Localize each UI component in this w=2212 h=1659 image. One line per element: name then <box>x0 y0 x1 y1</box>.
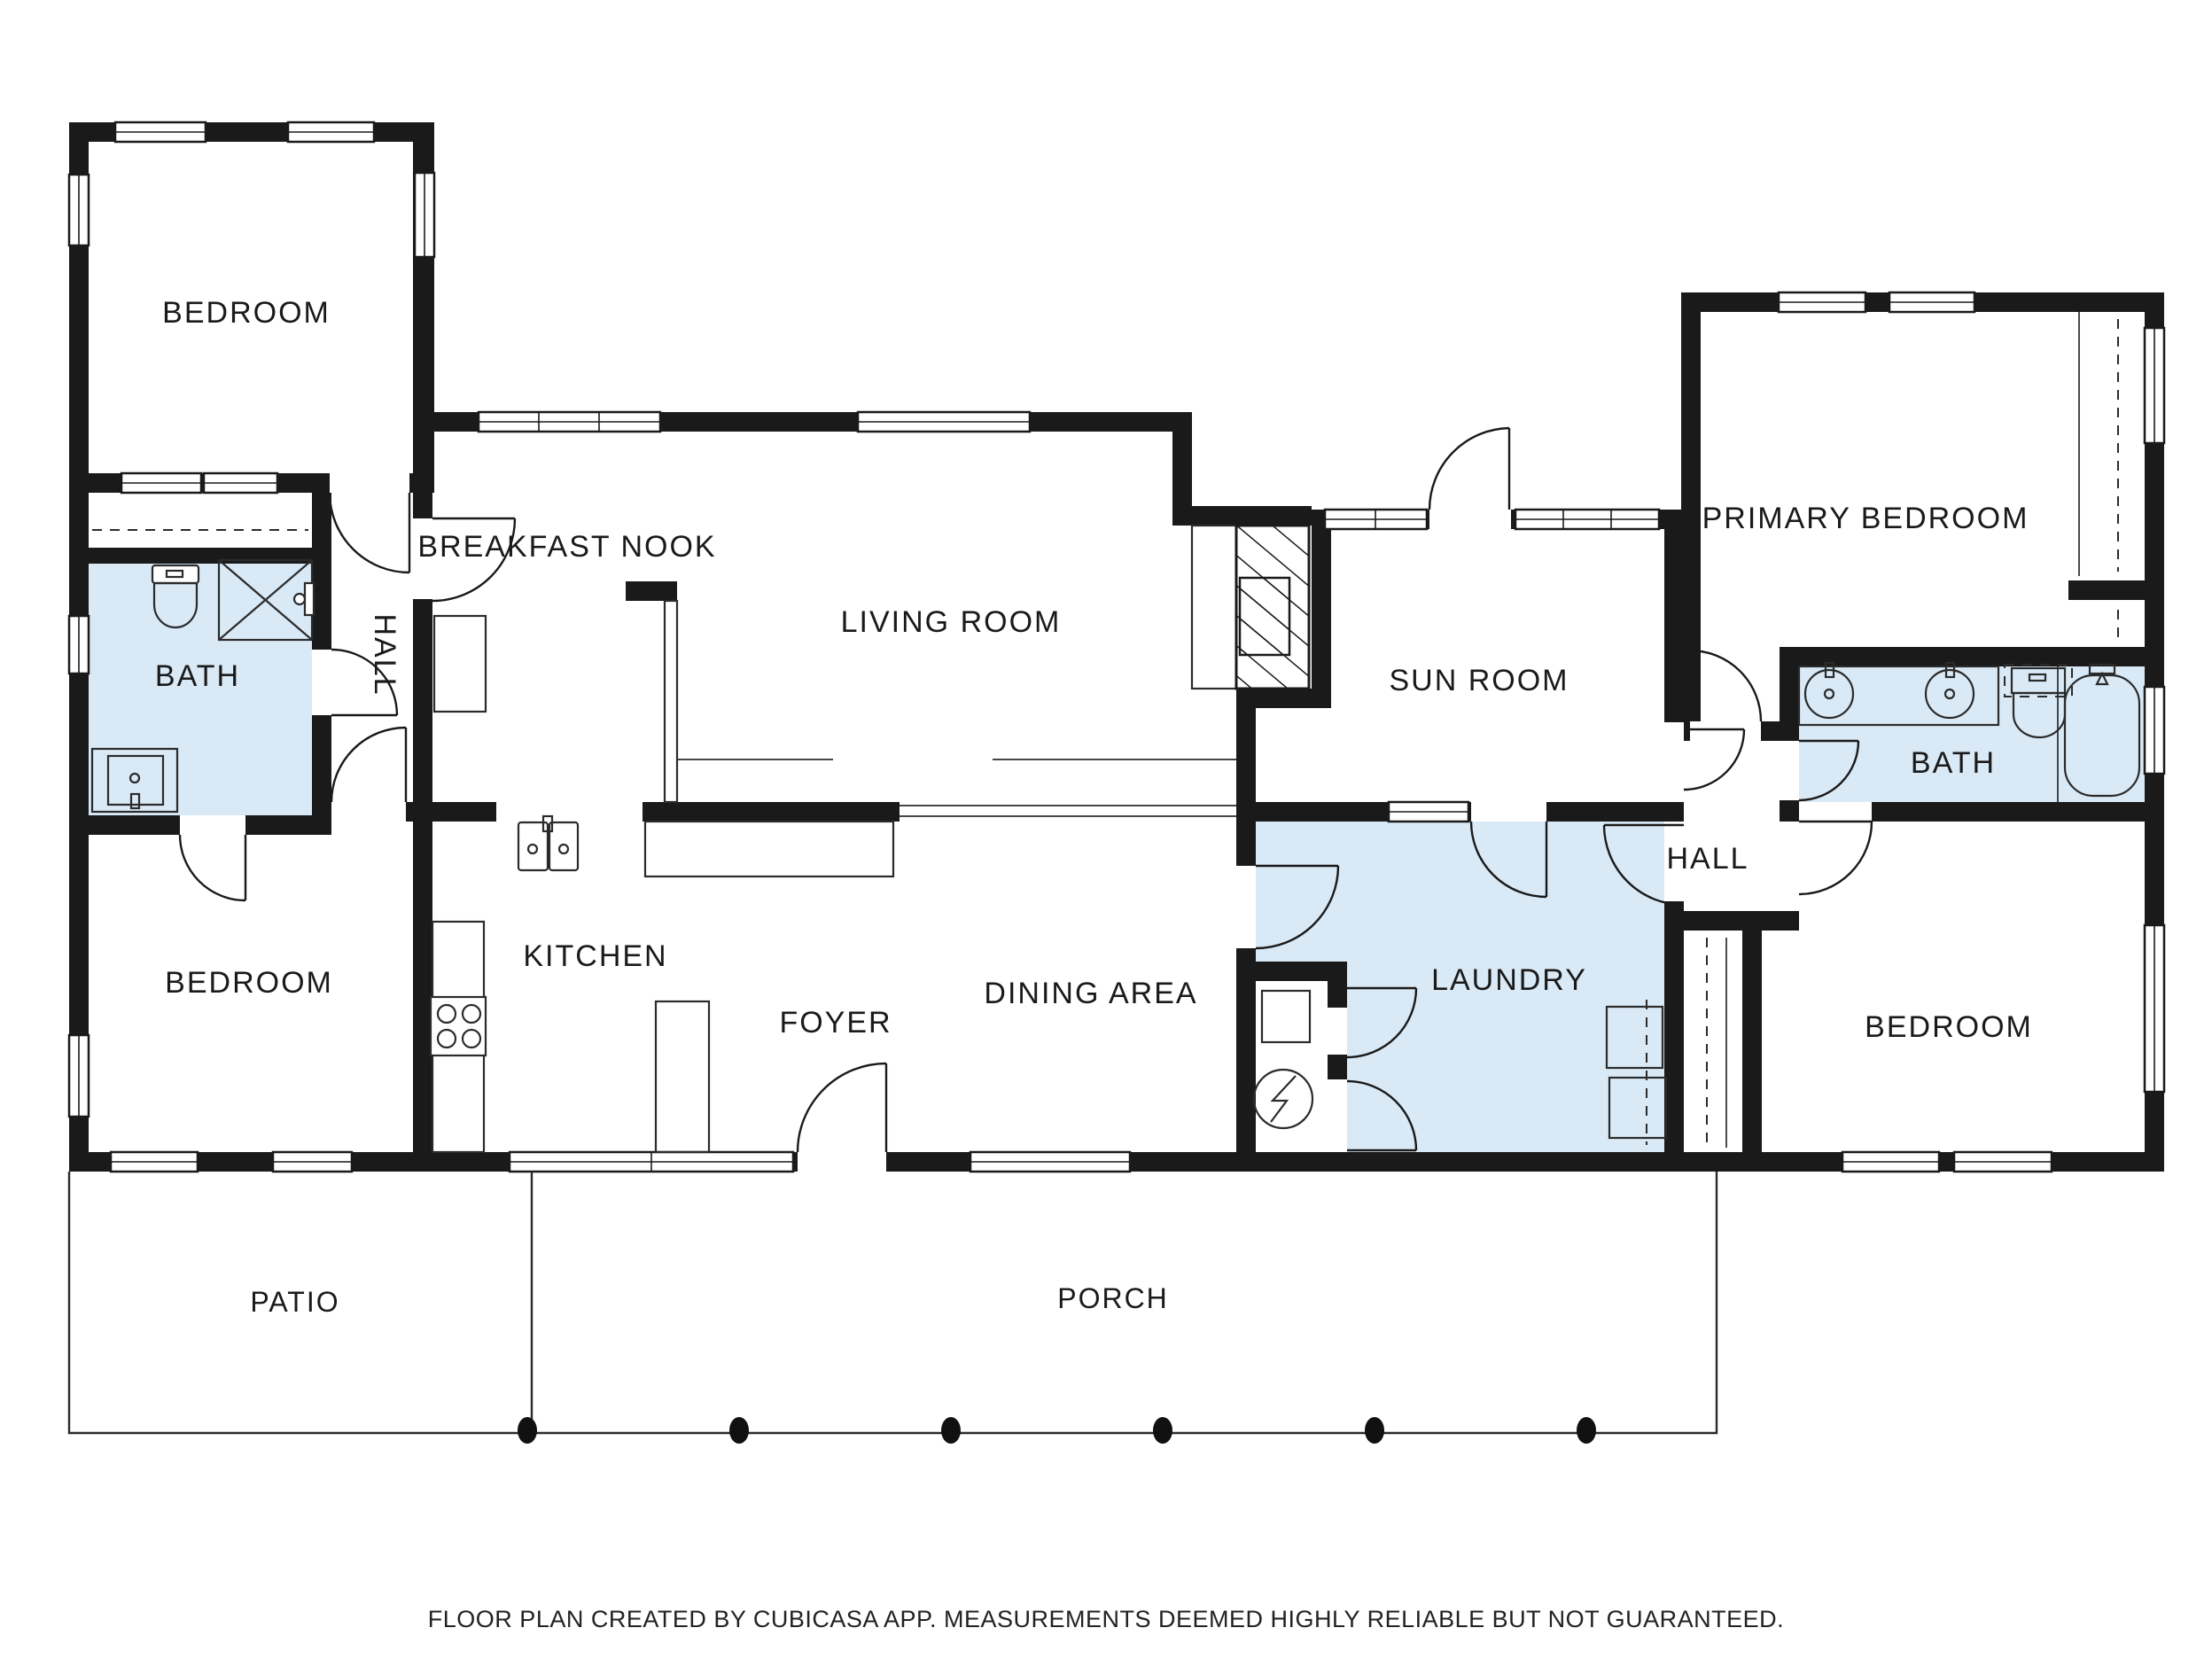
fireplace <box>1192 526 1309 689</box>
kitchen-island <box>656 1001 709 1152</box>
window <box>2145 328 2164 443</box>
window <box>288 122 374 142</box>
window <box>858 412 1030 432</box>
window <box>970 1152 1130 1172</box>
room-label-bath-right: BATH <box>1911 746 1996 780</box>
window <box>1779 292 1865 312</box>
door-arc <box>180 835 245 900</box>
floor-plan-canvas: BEDROOM BATH HALL BREAKFAST NOOK LIVING … <box>0 0 2212 1659</box>
window <box>1842 1152 1939 1172</box>
window <box>115 122 206 142</box>
area-label-porch: PORCH <box>1057 1282 1169 1314</box>
area-label-patio: PATIO <box>250 1286 339 1318</box>
kitchen-peninsula-counter <box>645 822 893 876</box>
door-arc <box>1429 428 1509 510</box>
fireplace-hearth <box>1192 526 1236 689</box>
window <box>69 616 89 674</box>
fireplace-firebox <box>1240 578 1289 655</box>
half-wall <box>665 601 677 802</box>
room-label-foyer: FOYER <box>779 1006 892 1040</box>
porch-columns <box>518 1417 1596 1444</box>
nook-cabinet <box>434 616 486 712</box>
kitchen-fixtures <box>431 616 893 1152</box>
window <box>273 1152 352 1172</box>
window <box>111 1152 198 1172</box>
front-door-arc <box>798 1063 886 1152</box>
room-label-bedroom-sw: BEDROOM <box>165 966 333 1000</box>
floor-plan-page: BEDROOM BATH HALL BREAKFAST NOOK LIVING … <box>0 0 2212 1659</box>
room-label-laundry: LAUNDRY <box>1431 963 1587 997</box>
porch-column <box>1365 1417 1384 1444</box>
room-label-kitchen: KITCHEN <box>523 939 667 973</box>
room-label-breakfast-nook: BREAKFAST NOOK <box>417 530 716 564</box>
window <box>479 412 660 432</box>
room-label-living-room: LIVING ROOM <box>841 605 1062 639</box>
room-label-primary-bedroom: PRIMARY BEDROOM <box>1702 502 2029 535</box>
room-label-dining-area: DINING AREA <box>984 977 1197 1010</box>
room-label-bath-left: BATH <box>155 659 240 693</box>
room-label-hall-right: HALL <box>1666 842 1749 876</box>
window <box>121 473 201 493</box>
window <box>69 1035 89 1117</box>
porch-column <box>1153 1417 1172 1444</box>
room-label-bedroom-se: BEDROOM <box>1865 1010 2033 1044</box>
window <box>2145 925 2164 1092</box>
porch-column <box>941 1417 961 1444</box>
sink-double <box>518 816 578 870</box>
window <box>1389 802 1468 822</box>
porch-column <box>729 1417 749 1444</box>
window <box>1889 292 1974 312</box>
window <box>1515 510 1659 529</box>
window <box>415 173 434 257</box>
door-arc <box>1799 822 1872 894</box>
window <box>69 175 89 245</box>
window <box>1954 1152 2052 1172</box>
window <box>1325 510 1427 529</box>
window <box>2145 687 2164 774</box>
window <box>204 473 277 493</box>
window <box>510 1152 793 1172</box>
door-arc <box>330 493 409 572</box>
door-arc <box>331 728 406 802</box>
room-label-sun-room: SUN ROOM <box>1390 664 1569 697</box>
porch-column <box>1577 1417 1596 1444</box>
room-label-hall-left: HALL <box>368 613 401 696</box>
stove <box>431 997 486 1055</box>
room-label-bedroom-nw: BEDROOM <box>162 296 331 330</box>
footer-disclaimer: FLOOR PLAN CREATED BY CUBICASA APP. MEAS… <box>428 1606 1784 1632</box>
porch-column <box>518 1417 537 1444</box>
